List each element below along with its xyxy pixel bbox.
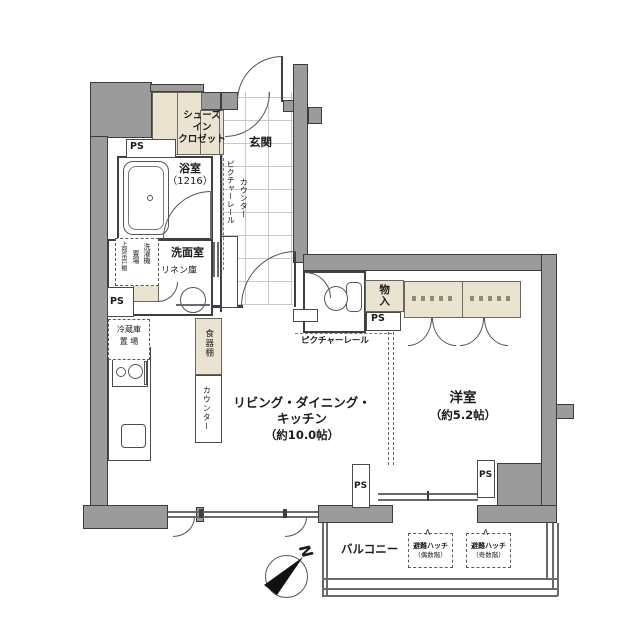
- wall-top-left-block: [90, 82, 152, 138]
- balcony-right-line-1: [546, 523, 548, 579]
- window-divider-1: [199, 509, 203, 518]
- balcony-left-line-1: [322, 523, 324, 597]
- ldk-line-2: キッチン: [222, 411, 382, 427]
- western-room-size: （約5.2帖）: [413, 407, 513, 424]
- stove-grill: [144, 361, 147, 385]
- toilet-tank: [346, 282, 362, 312]
- wall-wing-top: [303, 254, 553, 271]
- escape-hatch-even: ∧ 避難ハッチ （偶数階）: [408, 533, 453, 568]
- hatch-even-floor: （偶数階）: [409, 552, 452, 559]
- western-room-label: 洋室 （約5.2帖）: [413, 390, 513, 424]
- dish-cabinet-label: 食器棚: [203, 329, 213, 358]
- balcony-label: バルコニー: [341, 543, 398, 556]
- wall-right-fin: [556, 404, 574, 419]
- sic-line-2: イン: [162, 122, 242, 134]
- balcony-right-line-3: [557, 523, 559, 596]
- floor-plan: PS PS PS PS PS 冷蔵庫 置 場 カウンター 食器棚 上部吊戸棚 洗…: [0, 0, 639, 640]
- ps-label-3: PS: [371, 314, 385, 325]
- balcony-left-line-2: [326, 523, 328, 597]
- balcony-bottom-line-2: [322, 588, 558, 590]
- bifold-arc-3: [460, 318, 484, 346]
- linen-cabinet-label: リネン庫: [161, 266, 197, 276]
- balcony-bottom-line-3: [322, 595, 558, 597]
- escape-hatch-odd: ∧ 避難ハッチ （奇数階）: [466, 533, 511, 568]
- ldk-label: リビング・ダイニング・ キッチン （約10.0帖）: [222, 395, 382, 443]
- hatch-odd-floor: （奇数階）: [467, 552, 510, 559]
- sic-label: シューズ イン クロゼット: [162, 110, 242, 146]
- ldk-picture-rail-line: [295, 333, 392, 334]
- ps-label-1: PS: [130, 142, 144, 153]
- storage-monoire-label: 物入: [378, 284, 390, 307]
- hall-picture-rail-label: ピクチャーレール: [226, 160, 235, 224]
- corridor-step-box: [293, 309, 318, 322]
- fridge-line-1: 冷蔵庫: [109, 325, 149, 334]
- washroom-label: 洗面室: [171, 247, 204, 260]
- wall-southeast-a: [497, 463, 542, 506]
- bifold-arc-4: [484, 318, 508, 346]
- ps-label-5: PS: [479, 470, 492, 480]
- washbasin-counter-line: [176, 304, 210, 306]
- ldk-line-1: リビング・ダイニング・: [222, 395, 382, 411]
- laundry-label-left: 置場: [132, 250, 140, 264]
- hatch-odd-name: 避難ハッチ: [467, 542, 510, 550]
- closet-hanger-marks-1: [412, 296, 454, 301]
- laundry-label-right: 洗濯機: [143, 243, 151, 264]
- closet-divider: [462, 281, 463, 318]
- kitchen-sink: [121, 424, 146, 448]
- closet-hanger-marks-2: [470, 296, 512, 301]
- washroom-sliding-door: [213, 242, 215, 277]
- casement-arc-1: [173, 517, 195, 537]
- entrance-label: 玄関: [249, 136, 272, 149]
- sic-line-1: シューズ: [162, 110, 242, 122]
- bathroom-label: 浴室 （1216）: [155, 162, 225, 188]
- sic-line-3: クロゼット: [162, 134, 242, 146]
- stove-burner-1: [116, 367, 126, 377]
- bifold-arc-1: [408, 318, 432, 346]
- balcony-right-line-2: [552, 523, 554, 589]
- wall-bottom-left: [83, 505, 168, 529]
- hatch-peak-icon-2: ∧: [482, 527, 489, 538]
- wall-entry-stub: [308, 107, 322, 124]
- washroom-sliding-door-line: [217, 242, 219, 277]
- bathtub-drain: [147, 195, 153, 201]
- wall-southeast-b: [477, 505, 557, 523]
- hall-counter-label: カウンター: [239, 178, 248, 218]
- washbasin: [180, 287, 206, 313]
- bathroom-name: 浴室: [155, 162, 225, 175]
- ldk-partition-dashed2: [393, 322, 394, 465]
- ldk-south-window: [168, 511, 318, 513]
- hatch-even-name: 避難ハッチ: [409, 542, 452, 550]
- wall-entry-right: [293, 64, 308, 263]
- western-room-name: 洋室: [413, 390, 513, 407]
- wall-left: [90, 136, 108, 508]
- hatch-peak-icon: ∧: [424, 527, 431, 538]
- kitchen-counter-label: カウンター: [202, 386, 211, 431]
- fridge-space-label: 冷蔵庫 置 場: [109, 325, 149, 346]
- wall-right-outer: [541, 254, 557, 523]
- ps-label-2: PS: [110, 297, 124, 308]
- laundry-upper-cabinet-label: 上部吊戸棚: [119, 241, 126, 271]
- wall-sic-top: [150, 84, 204, 92]
- bathroom-size: （1216）: [155, 175, 225, 188]
- fridge-line-2: 置 場: [109, 337, 149, 346]
- bathroom-door-leaf: [210, 191, 212, 239]
- stove-burner-2: [128, 364, 143, 379]
- ldk-picture-rail-label: ピクチャーレール: [301, 337, 369, 347]
- bifold-arc-2: [432, 318, 456, 346]
- casement-arc-2: [285, 517, 307, 537]
- ldk-line-3: （約10.0帖）: [222, 427, 382, 443]
- balcony-bottom-line-1: [322, 578, 558, 580]
- ps-label-4: PS: [354, 481, 367, 491]
- ldk-partition-dashed: [388, 322, 389, 465]
- western-window-tick: [427, 491, 429, 501]
